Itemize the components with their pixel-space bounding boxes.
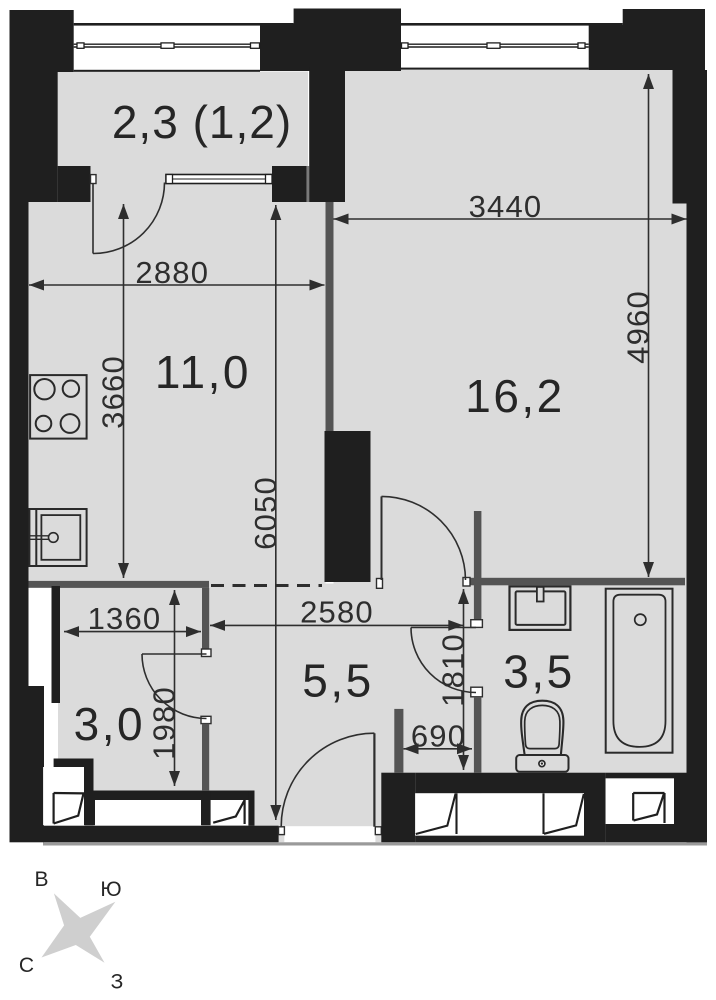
svg-text:11,0: 11,0: [155, 346, 251, 398]
svg-text:З: З: [111, 971, 124, 994]
svg-text:1980: 1980: [147, 686, 182, 760]
svg-text:2880: 2880: [135, 255, 209, 290]
svg-text:1360: 1360: [88, 601, 162, 636]
svg-text:3,5: 3,5: [503, 645, 574, 697]
svg-text:3660: 3660: [96, 355, 131, 429]
svg-text:1810: 1810: [436, 633, 471, 707]
svg-text:3,0: 3,0: [74, 698, 145, 750]
svg-text:690: 690: [411, 718, 466, 753]
svg-text:3440: 3440: [469, 189, 543, 224]
svg-text:16,2: 16,2: [465, 370, 565, 422]
svg-text:С: С: [19, 954, 34, 977]
svg-text:4960: 4960: [621, 290, 656, 364]
svg-text:2580: 2580: [300, 595, 374, 630]
svg-text:5,5: 5,5: [302, 655, 373, 707]
svg-text:6050: 6050: [248, 476, 283, 550]
svg-text:В: В: [34, 868, 48, 891]
svg-text:2,3 (1,2): 2,3 (1,2): [112, 96, 292, 148]
svg-text:Ю: Ю: [100, 878, 121, 901]
